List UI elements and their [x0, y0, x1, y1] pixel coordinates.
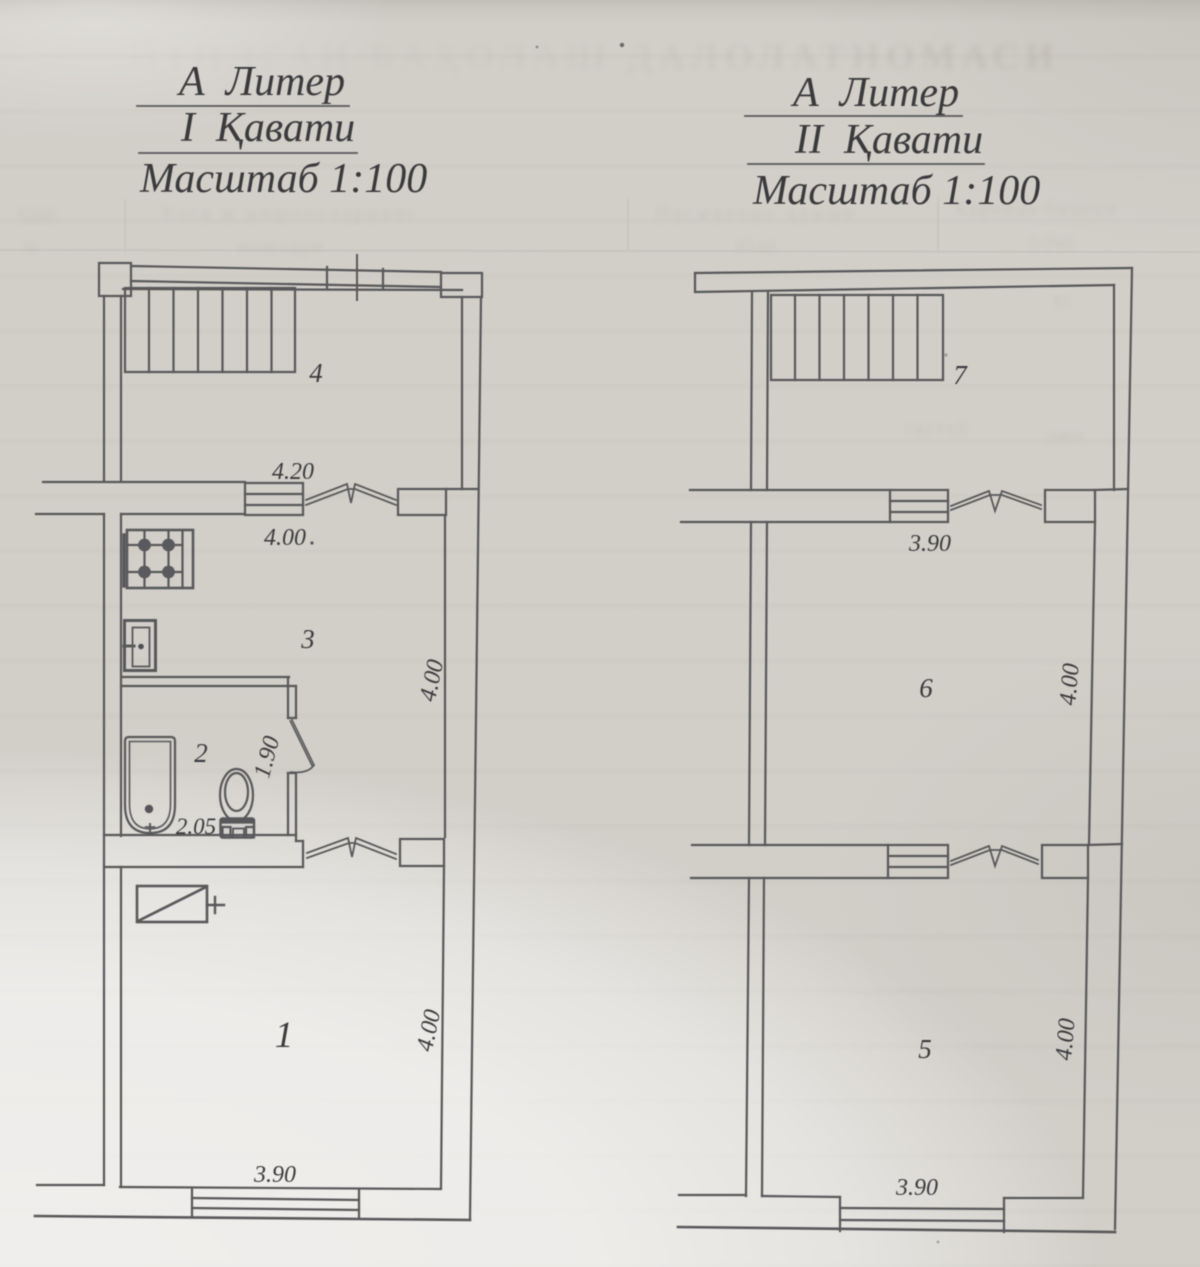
svg-text:5: 5 [918, 1034, 932, 1064]
svg-text:3.90: 3.90 [908, 531, 951, 557]
svg-text:1: 1 [275, 1015, 294, 1056]
svg-text:А Литер: А Литер [176, 59, 345, 105]
svg-text:4.00: 4.00 [1055, 662, 1085, 706]
svg-text:2: 2 [194, 738, 208, 768]
svg-text:4: 4 [309, 358, 323, 388]
svg-text:4.00: 4.00 [264, 525, 306, 551]
svg-text:4.00: 4.00 [412, 1007, 446, 1053]
svg-text:7: 7 [953, 360, 968, 390]
svg-text:3.90: 3.90 [253, 1162, 296, 1188]
svg-text:А Литер: А Литер [790, 70, 959, 116]
svg-text:II Қавати: II Қавати [794, 117, 983, 163]
svg-text:4.20: 4.20 [272, 459, 314, 485]
svg-text:3.90: 3.90 [895, 1175, 938, 1201]
svg-text:6: 6 [919, 673, 933, 703]
svg-text:4.00: 4.00 [1051, 1017, 1081, 1061]
svg-text:1.90: 1.90 [249, 734, 285, 781]
svg-text:Масштаб 1:100: Масштаб 1:100 [139, 156, 427, 202]
svg-text:3: 3 [300, 624, 315, 654]
svg-text:I Қавати: I Қавати [180, 105, 355, 151]
svg-text:Масштаб 1:100: Масштаб 1:100 [752, 168, 1040, 214]
